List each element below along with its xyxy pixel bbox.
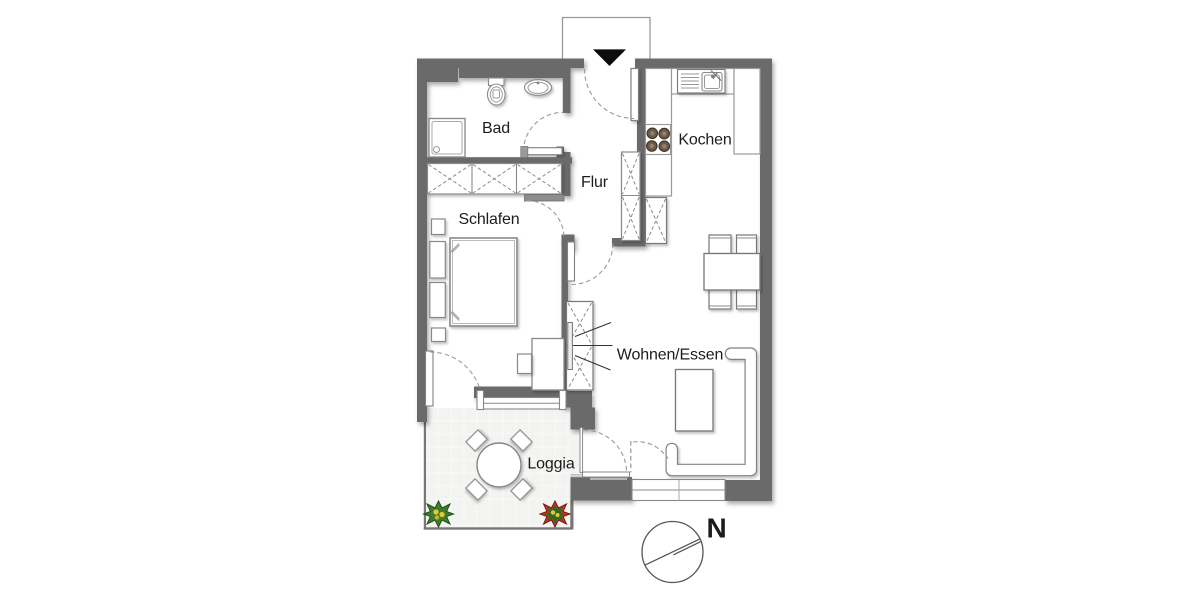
svg-text:Wohnen/Essen: Wohnen/Essen (617, 347, 723, 364)
svg-text:N: N (706, 513, 726, 544)
svg-text:Bad: Bad (482, 120, 510, 137)
svg-text:Kochen: Kochen (678, 132, 731, 149)
svg-text:Schlafen: Schlafen (458, 211, 519, 228)
svg-text:Loggia: Loggia (527, 456, 574, 473)
svg-text:Flur: Flur (581, 174, 609, 191)
